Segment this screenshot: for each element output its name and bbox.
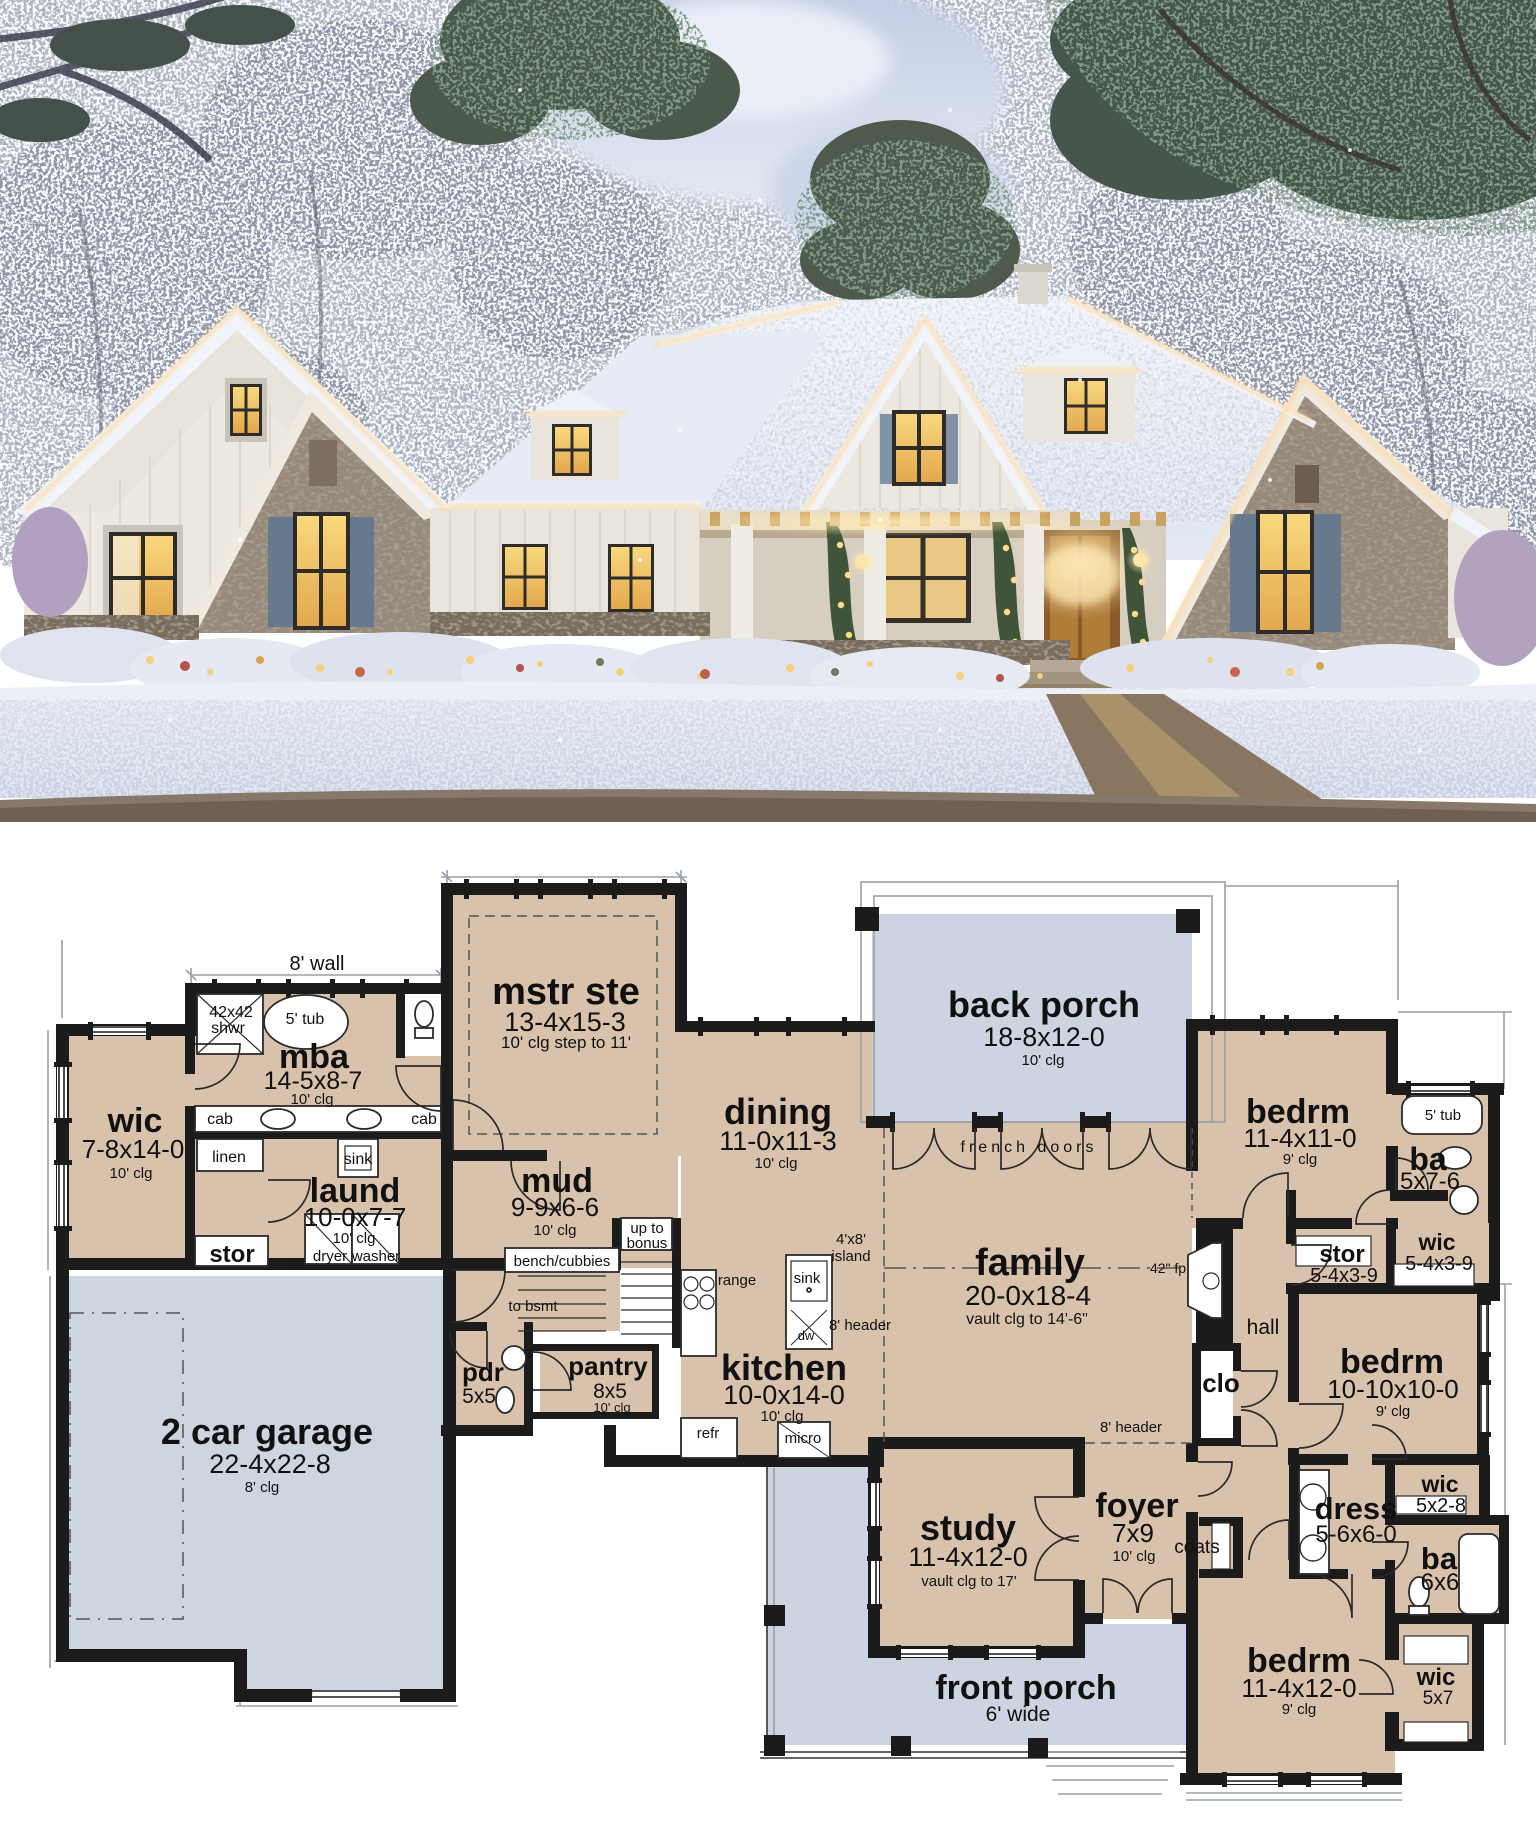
svg-text:pdr: pdr [462, 1357, 504, 1387]
svg-text:bench/cubbies: bench/cubbies [514, 1253, 611, 1270]
svg-text:to bsmt: to bsmt [508, 1298, 558, 1315]
svg-text:wic: wic [1420, 1471, 1458, 1497]
svg-text:22-4x22-8: 22-4x22-8 [209, 1449, 331, 1479]
svg-text:wic: wic [1416, 1664, 1456, 1691]
svg-text:10' clg: 10' clg [1022, 1052, 1065, 1069]
svg-text:11-4x11-0: 11-4x11-0 [1243, 1123, 1356, 1153]
svg-text:5-4x3-9: 5-4x3-9 [1310, 1265, 1378, 1287]
svg-text:10' clg step to 11': 10' clg step to 11' [501, 1033, 631, 1052]
svg-text:9' clg: 9' clg [1283, 1151, 1318, 1168]
svg-text:2 car garage: 2 car garage [161, 1411, 373, 1452]
svg-text:8' wall: 8' wall [290, 953, 345, 975]
svg-text:11-4x12-0: 11-4x12-0 [1241, 1673, 1356, 1703]
svg-text:10' clg: 10' clg [1113, 1548, 1156, 1565]
svg-text:sink: sink [794, 1270, 821, 1287]
svg-text:vault clg to 14'-6": vault clg to 14'-6" [966, 1311, 1088, 1328]
svg-text:island: island [831, 1248, 870, 1265]
svg-text:front porch: front porch [935, 1669, 1116, 1707]
svg-text:cab: cab [411, 1111, 437, 1128]
svg-text:hall: hall [1247, 1316, 1280, 1339]
svg-text:clo: clo [1202, 1368, 1240, 1398]
svg-text:9' clg: 9' clg [1376, 1403, 1411, 1420]
svg-text:42x42: 42x42 [209, 1004, 253, 1021]
svg-text:5x2-8: 5x2-8 [1416, 1495, 1466, 1517]
svg-text:pantry: pantry [568, 1351, 648, 1381]
svg-text:coats: coats [1174, 1537, 1219, 1558]
svg-text:5x5: 5x5 [462, 1385, 496, 1408]
svg-text:10' clg: 10' clg [593, 1400, 630, 1415]
svg-text:10' clg: 10' clg [534, 1222, 577, 1239]
svg-text:sink: sink [344, 1151, 373, 1168]
svg-text:42" fp: 42" fp [1150, 1260, 1186, 1276]
svg-text:5x7-6: 5x7-6 [1400, 1168, 1460, 1195]
svg-text:8' header: 8' header [829, 1317, 891, 1334]
svg-text:vault clg to 17': vault clg to 17' [921, 1573, 1017, 1590]
svg-text:dryer: dryer [313, 1248, 347, 1265]
svg-text:french doors: french doors [961, 1139, 1098, 1156]
svg-text:7x9: 7x9 [1112, 1518, 1154, 1548]
svg-text:11-4x12-0: 11-4x12-0 [908, 1542, 1028, 1572]
svg-text:5-6x6-0: 5-6x6-0 [1315, 1521, 1396, 1548]
svg-text:shwr: shwr [211, 1020, 245, 1037]
svg-text:8' clg: 8' clg [245, 1479, 280, 1496]
svg-text:7-8x14-0: 7-8x14-0 [82, 1134, 185, 1164]
svg-text:micro: micro [785, 1430, 822, 1447]
svg-text:stor: stor [1319, 1241, 1364, 1268]
svg-text:5-4x3-9: 5-4x3-9 [1405, 1253, 1473, 1275]
svg-text:dw: dw [798, 1328, 815, 1343]
svg-text:family: family [975, 1242, 1085, 1284]
svg-text:10' clg: 10' clg [291, 1091, 334, 1108]
svg-text:10' clg: 10' clg [755, 1155, 798, 1172]
svg-text:5x7: 5x7 [1423, 1688, 1454, 1709]
svg-text:bonus: bonus [627, 1235, 668, 1252]
svg-text:9-9x6-6: 9-9x6-6 [511, 1192, 599, 1222]
svg-text:wic: wic [1417, 1229, 1455, 1255]
svg-text:10-10x10-0: 10-10x10-0 [1327, 1374, 1459, 1404]
svg-text:5' tub: 5' tub [286, 1011, 325, 1028]
svg-text:5' tub: 5' tub [1425, 1107, 1461, 1124]
svg-text:10' clg: 10' clg [333, 1230, 376, 1247]
svg-text:cab: cab [207, 1111, 233, 1128]
svg-text:9' clg: 9' clg [1282, 1701, 1317, 1718]
svg-text:10-0x14-0: 10-0x14-0 [723, 1380, 845, 1410]
svg-text:18-8x12-0: 18-8x12-0 [983, 1022, 1105, 1052]
svg-text:6x6: 6x6 [1421, 1569, 1460, 1596]
svg-text:washer: washer [351, 1248, 400, 1265]
svg-text:11-0x11-3: 11-0x11-3 [719, 1126, 837, 1156]
svg-text:6' wide: 6' wide [986, 1703, 1051, 1726]
svg-text:linen: linen [212, 1149, 246, 1166]
svg-text:8' header: 8' header [1100, 1419, 1162, 1436]
svg-text:10' clg: 10' clg [761, 1408, 804, 1425]
svg-text:10-0x7-7: 10-0x7-7 [304, 1202, 407, 1232]
svg-text:20-0x18-4: 20-0x18-4 [965, 1280, 1091, 1311]
svg-text:stor: stor [209, 1241, 254, 1268]
svg-text:10' clg: 10' clg [110, 1165, 153, 1182]
svg-text:range: range [718, 1272, 756, 1289]
svg-text:back porch: back porch [948, 984, 1140, 1025]
svg-text:refr: refr [697, 1425, 720, 1442]
svg-text:4'x8': 4'x8' [836, 1231, 866, 1248]
